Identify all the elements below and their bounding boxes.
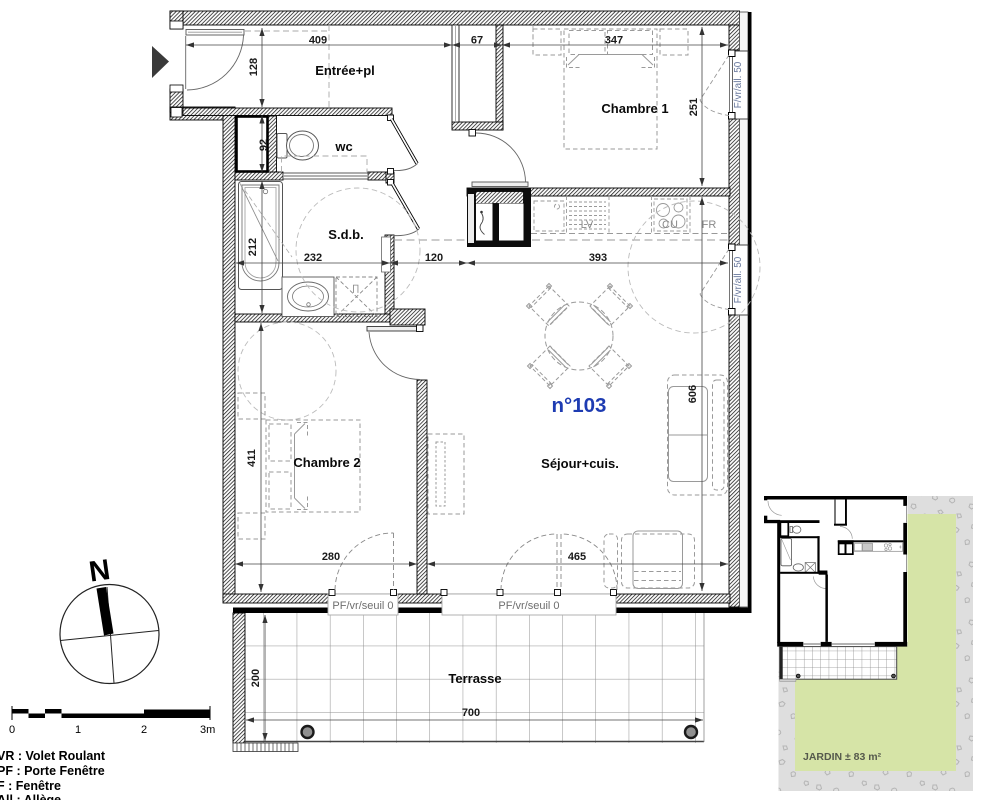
svg-text:212: 212 (247, 238, 259, 256)
svg-text:Séjour+cuis.: Séjour+cuis. (541, 456, 619, 471)
svg-text:∏: ∏ (352, 283, 359, 294)
svg-text:92: 92 (258, 139, 270, 151)
svg-text:200: 200 (250, 669, 262, 687)
svg-text:232: 232 (304, 252, 322, 264)
svg-text:All : Allège: All : Allège (0, 793, 61, 800)
svg-text:PF/vr/seuil 0: PF/vr/seuil 0 (332, 600, 393, 612)
svg-text:LV: LV (581, 219, 594, 231)
svg-text:Entrée+pl: Entrée+pl (315, 63, 375, 78)
svg-text:F/vr/all. 50: F/vr/all. 50 (733, 256, 744, 303)
svg-text:n°103: n°103 (552, 394, 607, 417)
svg-text:N: N (87, 554, 112, 589)
svg-text:PF : Porte Fenêtre: PF : Porte Fenêtre (0, 764, 105, 778)
svg-text:JARDIN ± 83 m²: JARDIN ± 83 m² (803, 751, 882, 763)
svg-text:128: 128 (248, 58, 260, 76)
svg-text:2: 2 (141, 724, 147, 736)
svg-text:Chambre 2: Chambre 2 (293, 455, 360, 470)
svg-text:S.d.b.: S.d.b. (328, 227, 363, 242)
svg-text:CU: CU (662, 219, 678, 231)
svg-text:700: 700 (462, 707, 480, 719)
svg-text:465: 465 (568, 551, 586, 563)
svg-text:411: 411 (246, 449, 258, 467)
svg-text:280: 280 (322, 551, 340, 563)
svg-text:F : Fenêtre: F : Fenêtre (0, 779, 61, 793)
svg-text:VR : Volet Roulant: VR : Volet Roulant (0, 749, 106, 763)
svg-text:393: 393 (589, 252, 607, 264)
svg-text:120: 120 (425, 252, 443, 264)
svg-text:67: 67 (471, 35, 483, 47)
svg-text:251: 251 (688, 98, 700, 116)
svg-text:wc: wc (334, 139, 352, 154)
svg-text:0: 0 (9, 724, 15, 736)
svg-text:Chambre 1: Chambre 1 (601, 101, 668, 116)
svg-text:606: 606 (687, 385, 699, 403)
svg-text:409: 409 (309, 35, 327, 47)
svg-text:1: 1 (75, 724, 81, 736)
svg-text:F/vr/all. 50: F/vr/all. 50 (733, 61, 744, 108)
svg-text:Terrasse: Terrasse (448, 671, 501, 686)
svg-text:FR: FR (702, 219, 717, 231)
svg-text:347: 347 (605, 35, 623, 47)
svg-text:PF/vr/seuil 0: PF/vr/seuil 0 (498, 600, 559, 612)
svg-text:3m: 3m (200, 724, 215, 736)
